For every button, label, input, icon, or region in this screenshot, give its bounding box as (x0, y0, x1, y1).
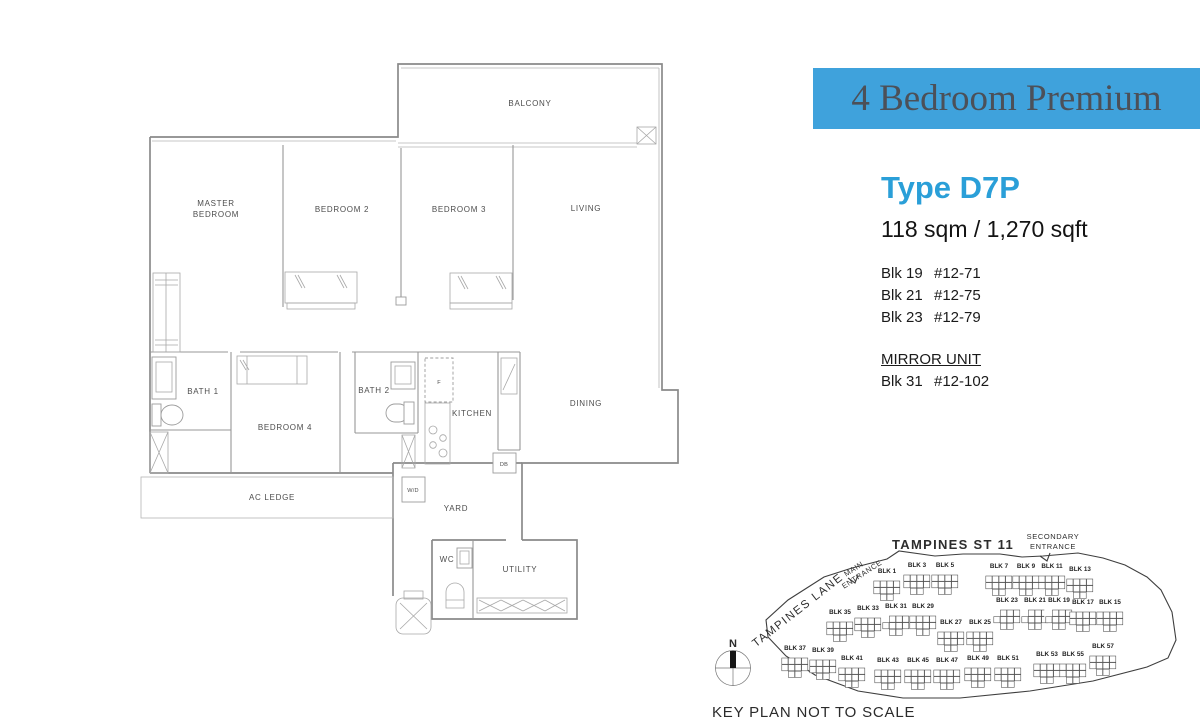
floor-plan: BALCONYMASTERBEDROOMBEDROOM 2BEDROOM 3LI… (141, 64, 678, 634)
unit-square (1073, 671, 1079, 677)
unit-square (925, 670, 931, 676)
floor-plan-fixtures (152, 272, 567, 613)
unit-square (861, 618, 867, 624)
unit-square (1047, 664, 1053, 670)
unit-square (845, 675, 851, 681)
block-number: Blk 21 (881, 285, 934, 307)
unit-square (1080, 592, 1086, 598)
unit-square (795, 665, 801, 671)
unit-square (1117, 619, 1123, 625)
unit-square (810, 660, 816, 666)
block-label: BLK 57 (1092, 643, 1114, 650)
floor-plan-walls (141, 64, 678, 619)
unit-square (889, 629, 895, 635)
unit-square (880, 581, 886, 587)
unit-square (1028, 623, 1034, 629)
unit-square (967, 639, 973, 645)
unit-square (940, 683, 946, 689)
unit-square (1103, 612, 1109, 618)
keyplan-block-blk-11: BLK 11 (1039, 563, 1065, 595)
unit-square (944, 639, 950, 645)
brochure-page: BALCONYMASTERBEDROOMBEDROOM 2BEDROOM 3LI… (0, 0, 1200, 724)
unit-square (1001, 668, 1007, 674)
unit-square (1047, 677, 1053, 683)
unit-square (1067, 586, 1073, 592)
unit-square (1103, 663, 1109, 669)
unit-square (1033, 576, 1039, 582)
block-label: BLK 43 (877, 657, 899, 664)
unit-square (973, 639, 979, 645)
unit-square (1059, 576, 1065, 582)
unit-square (816, 667, 822, 673)
unit-square (875, 677, 881, 683)
street-label: TAMPINES ST 11 (892, 537, 1014, 552)
unit-square (938, 582, 944, 588)
block-label: BLK 11 (1041, 563, 1063, 570)
unit-square (795, 671, 801, 677)
block-number: Blk 23 (881, 307, 934, 329)
unit-square (1080, 579, 1086, 585)
unit-square (880, 594, 886, 600)
unit-square (980, 632, 986, 638)
unit-square (1026, 583, 1032, 589)
unit-square (1103, 619, 1109, 625)
unit-square (1076, 625, 1082, 631)
unit-square (1096, 669, 1102, 675)
unit-square (924, 575, 930, 581)
unit-square (889, 623, 895, 629)
block-label: BLK 55 (1062, 651, 1084, 658)
unit-square (1066, 664, 1072, 670)
unit-square (816, 660, 822, 666)
unit-square (840, 629, 846, 635)
room-label-utility: UTILITY (503, 565, 538, 574)
unit-square (896, 623, 902, 629)
block-label: BLK 25 (969, 619, 991, 626)
unit-square (1046, 617, 1052, 623)
unit-square (823, 660, 829, 666)
unit-square (802, 665, 808, 671)
unit-locations: Blk 19 #12-71 Blk 21 #12-75 Blk 23 #12-7… (881, 263, 1181, 329)
room-label-f: F (437, 380, 441, 386)
unit-square (954, 677, 960, 683)
unit-square (845, 668, 851, 674)
room-label-master: MASTER (197, 199, 235, 208)
unit-square (1026, 576, 1032, 582)
unit-square (938, 639, 944, 645)
keyplan-block-blk-13: BLK 13 (1067, 566, 1093, 598)
unit-square (896, 616, 902, 622)
highlighted-unit (1020, 609, 1029, 618)
unit-number: #12-79 (934, 307, 981, 329)
unit-square (1013, 576, 1019, 582)
room-label-bedroom-4: BEDROOM 4 (258, 423, 312, 432)
unit-square (934, 677, 940, 683)
keyplan-block-blk-15: BLK 15 (1097, 599, 1123, 631)
unit-square (1073, 677, 1079, 683)
unit-square (1080, 586, 1086, 592)
unit-square (847, 622, 853, 628)
unit-square (999, 583, 1005, 589)
room-label-living: LIVING (571, 204, 601, 213)
unit-square (986, 576, 992, 582)
unit-square (840, 622, 846, 628)
unit-square (1059, 583, 1065, 589)
unit-square (951, 645, 957, 651)
unit-square (830, 660, 836, 666)
unit-square (940, 677, 946, 683)
unit-square (904, 582, 910, 588)
unit-square (894, 588, 900, 594)
secondary-entrance-mark (1040, 553, 1050, 561)
unit-square (1035, 617, 1041, 623)
secondary-entrance-label2: ENTRANCE (1030, 542, 1076, 551)
keyplan-block-blk-7: BLK 7 (986, 563, 1012, 595)
unit-square (1019, 583, 1025, 589)
unit-square (1110, 656, 1116, 662)
unit-square (1052, 617, 1058, 623)
unit-square (895, 670, 901, 676)
unit-square (833, 635, 839, 641)
unit-square (1040, 671, 1046, 677)
unit-square (1103, 625, 1109, 631)
unit-square (930, 616, 936, 622)
room-label-ac-ledge: AC LEDGE (249, 493, 295, 502)
unit-square (1026, 589, 1032, 595)
keyplan-block-blk-29: BLK 29 (910, 603, 936, 635)
unit-square (1073, 592, 1079, 598)
room-label-kitchen: KITCHEN (452, 409, 492, 418)
unit-square (889, 616, 895, 622)
unit-square (903, 623, 909, 629)
unit-square (1028, 610, 1034, 616)
unit-square (845, 681, 851, 687)
unit-square (938, 575, 944, 581)
unit-square (965, 675, 971, 681)
unit-square (875, 670, 881, 676)
unit-square (1076, 619, 1082, 625)
unit-square (1066, 671, 1072, 677)
unit-square (880, 588, 886, 594)
unit-square (830, 667, 836, 673)
keyplan-block-blk-5: BLK 5 (932, 562, 958, 594)
unit-number: #12-71 (934, 263, 981, 285)
unit-square (1070, 619, 1076, 625)
unit-square (903, 616, 909, 622)
unit-square (1052, 623, 1058, 629)
unit-square (923, 623, 929, 629)
unit-square (1110, 625, 1116, 631)
unit-square (1022, 617, 1028, 623)
unit-square (1090, 663, 1096, 669)
room-label-bath-2: BATH 2 (358, 386, 390, 395)
unit-square (788, 665, 794, 671)
keyplan-block-blk-19: BLK 19 (1044, 597, 1071, 629)
unit-number: #12-102 (934, 371, 989, 393)
unit-square (1008, 681, 1014, 687)
unit-square (788, 671, 794, 677)
unit-square (918, 683, 924, 689)
unit-location-row: Blk 19 #12-71 (881, 263, 1181, 285)
unit-square (1054, 664, 1060, 670)
unit-square (874, 581, 880, 587)
keyplan-block-blk-45: BLK 45 (905, 657, 931, 689)
unit-square (904, 575, 910, 581)
unit-square (840, 635, 846, 641)
unit-square (1035, 623, 1041, 629)
unit-square (1060, 664, 1066, 670)
secondary-entrance-label: SECONDARY (1027, 532, 1080, 541)
unit-square (1080, 671, 1086, 677)
keyplan-block-blk-47: BLK 47 (934, 657, 960, 689)
unit-square (1000, 617, 1006, 623)
room-label-bedroom-2: BEDROOM 2 (315, 205, 369, 214)
block-label: BLK 7 (990, 563, 1009, 570)
block-label: BLK 3 (908, 562, 927, 569)
unit-square (1052, 589, 1058, 595)
unit-square (1110, 663, 1116, 669)
unit-square (861, 625, 867, 631)
unit-square (852, 675, 858, 681)
unit-square (1052, 576, 1058, 582)
unit-square (1083, 619, 1089, 625)
key-plan: TAMPINES ST 11 SECONDARY ENTRANCE MAIN E… (712, 532, 1176, 721)
unit-square (1045, 576, 1051, 582)
unit-square (881, 670, 887, 676)
unit-square (1060, 671, 1066, 677)
unit-square (958, 639, 964, 645)
block-label: BLK 45 (907, 657, 929, 664)
unit-square (971, 668, 977, 674)
unit-square (992, 576, 998, 582)
room-label-balcony: BALCONY (508, 99, 551, 108)
room-label-yard: YARD (444, 504, 468, 513)
room-label-bedroom: BEDROOM (193, 210, 239, 219)
unit-square (1028, 617, 1034, 623)
unit-square (1035, 610, 1041, 616)
unit-location-row: Blk 23 #12-79 (881, 307, 1181, 329)
unit-square (1039, 583, 1045, 589)
keyplan-block-blk-27: BLK 27 (938, 619, 964, 651)
keyplan-block-blk-43: BLK 43 (875, 657, 901, 689)
plan-type-banner: 4 Bedroom Premium (813, 68, 1200, 129)
unit-square (1090, 612, 1096, 618)
unit-square (951, 639, 957, 645)
highlighted-unit (881, 615, 890, 624)
block-label: BLK 13 (1069, 566, 1091, 573)
unit-square (995, 668, 1001, 674)
unit-square (923, 616, 929, 622)
unit-square (1007, 610, 1013, 616)
unit-square (980, 645, 986, 651)
unit-square (1080, 664, 1086, 670)
unit-square (923, 629, 929, 635)
unit-square (859, 668, 865, 674)
block-label: BLK 9 (1017, 563, 1036, 570)
block-number: Blk 31 (881, 371, 934, 393)
unit-location-row: Blk 21 #12-75 (881, 285, 1181, 307)
unit-square (932, 575, 938, 581)
keyplan-block-blk-33: BLK 33 (855, 605, 881, 637)
unit-square (823, 667, 829, 673)
key-plan-caption: KEY PLAN NOT TO SCALE (712, 704, 915, 721)
unit-type-title: Type D7P (881, 170, 1181, 206)
keyplan-block-blk-49: BLK 49 (965, 655, 991, 687)
unit-square (782, 658, 788, 664)
unit-square (1000, 610, 1006, 616)
unit-square (973, 645, 979, 651)
unit-square (881, 677, 887, 683)
unit-square (1007, 617, 1013, 623)
unit-square (987, 639, 993, 645)
room-label-wc: WC (440, 555, 455, 564)
unit-square (874, 588, 880, 594)
unit-square (910, 623, 916, 629)
unit-square (1090, 619, 1096, 625)
unit-square (847, 629, 853, 635)
unit-square (1103, 669, 1109, 675)
block-label: BLK 49 (967, 655, 989, 662)
unit-square (986, 583, 992, 589)
unit-square (958, 632, 964, 638)
unit-square (1019, 589, 1025, 595)
unit-square (925, 677, 931, 683)
unit-square (1054, 671, 1060, 677)
unit-square (1006, 576, 1012, 582)
unit-square (947, 683, 953, 689)
block-label: BLK 33 (857, 605, 879, 612)
floor-plan-labels: BALCONYMASTERBEDROOMBEDROOM 2BEDROOM 3LI… (187, 99, 602, 574)
unit-square (1033, 583, 1039, 589)
room-label-dining: DINING (570, 399, 602, 408)
unit-square (823, 673, 829, 679)
unit-square (859, 675, 865, 681)
mirror-unit-location-row: Blk 31 #12-102 (881, 371, 1181, 393)
unit-square (1013, 583, 1019, 589)
unit-square (954, 670, 960, 676)
unit-square (978, 681, 984, 687)
unit-area: 118 sqm / 1,270 sqft (881, 216, 1181, 243)
unit-square (934, 670, 940, 676)
unit-square (916, 616, 922, 622)
unit-square (1000, 623, 1006, 629)
block-label: BLK 47 (936, 657, 958, 664)
block-label: BLK 51 (997, 655, 1019, 662)
unit-square (945, 588, 951, 594)
unit-square (1007, 623, 1013, 629)
keyplan-block-blk-41: BLK 41 (839, 655, 865, 687)
unit-square (971, 675, 977, 681)
keyplan-block-blk-31: BLK 31 (881, 603, 909, 635)
unit-square (967, 632, 973, 638)
unit-square (985, 675, 991, 681)
unit-square (896, 629, 902, 635)
unit-square (816, 673, 822, 679)
unit-square (868, 618, 874, 624)
unit-square (1034, 671, 1040, 677)
unit-square (944, 645, 950, 651)
room-label-bedroom-3: BEDROOM 3 (432, 205, 486, 214)
unit-square (782, 665, 788, 671)
unit-square (1096, 663, 1102, 669)
unit-square (1083, 612, 1089, 618)
unit-square (788, 658, 794, 664)
unit-square (895, 677, 901, 683)
compass-n-label: N (729, 638, 737, 650)
room-label-db: DB (500, 462, 508, 468)
unit-square (1040, 664, 1046, 670)
keyplan-block-blk-3: BLK 3 (904, 562, 930, 594)
unit-square (1008, 668, 1014, 674)
unit-square (965, 668, 971, 674)
unit-square (887, 588, 893, 594)
keyplan-block-blk-53: BLK 53 (1034, 651, 1060, 683)
unit-square (1014, 617, 1020, 623)
block-label: BLK 19 (1048, 597, 1070, 604)
room-label-w-d: W/D (407, 488, 418, 494)
unit-number: #12-75 (934, 285, 981, 307)
unit-square (952, 582, 958, 588)
block-label: BLK 5 (936, 562, 955, 569)
unit-square (852, 668, 858, 674)
unit-square (855, 618, 861, 624)
unit-square (1045, 583, 1051, 589)
unit-square (852, 681, 858, 687)
mirror-unit-heading: MIRROR UNIT (881, 349, 1181, 371)
unit-square (839, 675, 845, 681)
unit-square (875, 625, 881, 631)
unit-square (827, 629, 833, 635)
unit-square (910, 588, 916, 594)
unit-square (947, 670, 953, 676)
unit-square (1052, 583, 1058, 589)
unit-square (1045, 589, 1051, 595)
unit-square (1073, 664, 1079, 670)
unit-square (932, 582, 938, 588)
unit-square (930, 623, 936, 629)
unit-square (940, 670, 946, 676)
unit-square (894, 581, 900, 587)
unit-square (1087, 579, 1093, 585)
unit-square (802, 658, 808, 664)
unit-square (918, 677, 924, 683)
unit-square (1083, 625, 1089, 631)
unit-square (839, 668, 845, 674)
block-label: BLK 41 (841, 655, 863, 662)
block-label: BLK 17 (1072, 599, 1094, 606)
unit-square (887, 581, 893, 587)
unit-square (938, 632, 944, 638)
unit-square (1006, 583, 1012, 589)
highlighted-unit (992, 609, 1001, 618)
unit-square (1066, 677, 1072, 683)
unit-square (888, 683, 894, 689)
keyplan-block-blk-23: BLK 23 (992, 597, 1020, 629)
unit-square (1019, 576, 1025, 582)
keyplan-block-blk-9: BLK 9 (1013, 563, 1039, 595)
unit-square (855, 625, 861, 631)
highlighted-unit (1044, 609, 1053, 618)
unit-square (887, 594, 893, 600)
unit-square (1076, 612, 1082, 618)
banner-title: 4 Bedroom Premium (851, 77, 1161, 120)
unit-square (1014, 610, 1020, 616)
block-label: BLK 21 (1024, 597, 1046, 604)
unit-square (987, 632, 993, 638)
unit-square (999, 576, 1005, 582)
keyplan-block-blk-17: BLK 17 (1070, 599, 1096, 631)
unit-square (1001, 681, 1007, 687)
